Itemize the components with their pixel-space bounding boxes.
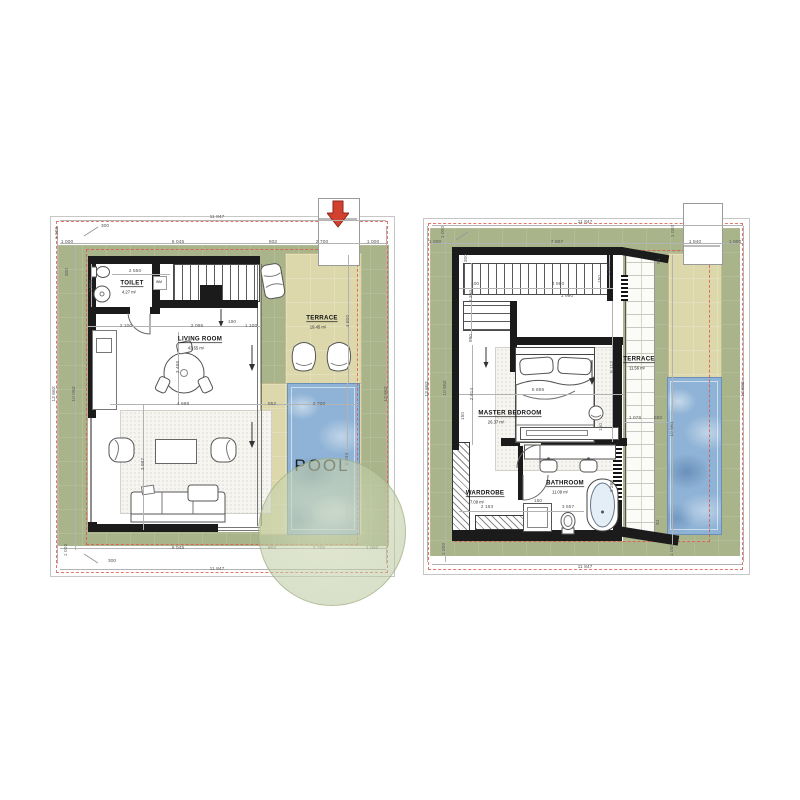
dimension-label: 3 997 [141,458,146,470]
dimension-label: 1 100 [245,324,257,329]
dimension-label: 3 465 [176,361,181,373]
dimension-label: 1 000 [729,240,741,245]
room-area-terrace: 11.56 m² [629,366,645,371]
dimension-label: 100 [471,282,479,287]
dimension-label: 1 850 [89,280,94,292]
dimension-label: 5 895 [532,388,544,393]
room-label-terrace: TERRACE [623,355,654,363]
dimension-label: 12 662 [384,386,389,401]
dimension-label: 3 280 [610,480,615,492]
dimension-label: 1 990 [561,294,573,299]
dimension-label: 1 000 [670,544,675,556]
dimension-label: 11 847 [210,215,225,220]
dimension-label: 1 940 [689,240,701,245]
dimension-label: 2 350 [469,290,474,302]
room-label-master-bedroom: MASTER BEDROOM [478,409,541,417]
dimension-label: 300 [108,559,116,564]
dimension-label: 1 076 [629,416,641,421]
dimension-label: 190 [228,320,236,325]
dimension-label: 10 561 [670,421,675,436]
dimension-label: 852 [268,402,276,407]
dimension-label: 150 [461,412,466,420]
dimension-label: 1 000 [64,544,69,556]
dimension-label: 6 045 [172,546,184,551]
room-area-bathroom: 11.09 m² [552,490,568,495]
floor-plan-sheet: { "colors":{"plot_green":"#a9b48a","terr… [0,0,800,800]
dimension-label: 11 847 [578,565,593,570]
washing-machine-label: WM [156,280,162,284]
dimension-label: 300 [464,254,469,262]
dimension-label: 4 980 [552,282,564,287]
dimension-label: 6 045 [172,240,184,245]
dimension-label: 12 662 [741,381,746,396]
entrance-arrow-icon [327,200,349,228]
floor-plan-upper: MASTER BEDROOM 26.37 m² WARDROBE 7.09 m²… [420,212,765,578]
dimension-label: 1 000 [442,543,447,555]
room-label-wardrobe: WARDROBE [466,489,505,497]
room-label-bathroom: BATHROOM [546,479,584,487]
room-label-toilet: TOILET [120,279,143,287]
room-area-master-bedroom: 26.37 m² [488,420,504,425]
dimension-label: 2 100 [120,324,132,329]
dimension-label: 11 847 [210,567,225,572]
dimension-label: 7 907 [551,240,563,245]
dimension-label: 300 [101,224,109,229]
dimension-label: 2 700 [313,402,325,407]
dimension-label: 802 [269,240,277,245]
dimension-label: 1 000 [429,240,441,245]
room-area-living: 43.55 m² [188,346,204,351]
dimension-label: 1 000 [61,240,73,245]
dimension-label: 1 000 [55,227,60,239]
dimension-label: 51 [657,258,662,264]
dimension-label: 4 800 [346,315,351,327]
dimension-label: 2 183 [481,505,493,510]
dimension-label: 1 000 [671,225,676,237]
room-label-terrace: TERRACE [306,314,337,322]
dimension-label: 12 662 [425,381,430,396]
dimension-label: 10 062 [72,386,77,401]
dimension-label: 1 000 [441,226,446,238]
dimension-label: 11 847 [578,220,593,225]
dimension-label: 150 [599,423,604,431]
dimension-label: 2 914 [470,388,475,400]
dimension-label: 2 700 [316,240,328,245]
dimension-label: 51 [656,519,661,525]
room-label-living: LIVING ROOM [178,335,222,343]
dimension-label: 150 [598,275,603,283]
dimension-label: 1 400 [607,263,612,275]
dimension-label: 2 550 [129,269,141,274]
dimension-label: 1 000 [367,240,379,245]
room-area-terrace: 19.45 m² [310,325,326,330]
tree-canopy [258,458,406,606]
room-area-toilet: 4.27 m² [122,290,136,295]
dimension-label: 150 [534,499,542,504]
dimension-label: 10 662 [443,380,448,395]
dimension-label: 2 095 [191,324,203,329]
dimension-label: 4 988 [177,402,189,407]
dimension-label: 990 [469,334,474,342]
dimension-label: 12 662 [52,386,57,401]
dimension-label: 5 112 [610,361,615,373]
dimension-label: 300 [65,268,70,276]
dimension-label: 3 557 [562,505,574,510]
dimension-label: 582 [654,416,662,421]
